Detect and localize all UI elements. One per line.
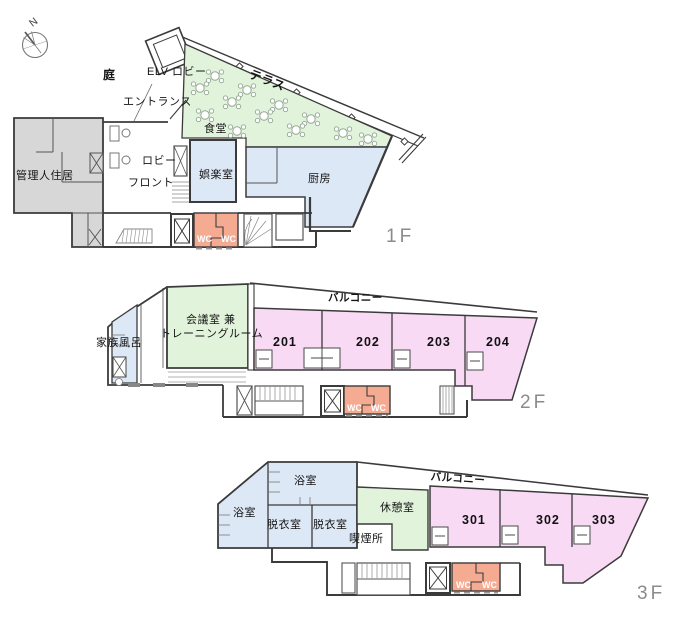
ramp-hatch-icon <box>116 229 152 243</box>
room-label-lobby: ロビー <box>142 155 177 168</box>
room-label-entrance: エントランス <box>123 96 192 109</box>
compass-icon <box>23 32 48 58</box>
room-label-201: 201 <box>273 335 297 349</box>
room-label-dressing-2: 脱衣室 <box>313 519 348 532</box>
stairs-icon-1f <box>244 214 272 247</box>
wc-label-3f-2: WC <box>482 580 497 590</box>
room-label-204: 204 <box>486 335 510 349</box>
floorplan-page: N 庭 ELV ロビー エントランス テラス 食堂 ロビー フロント 管理人住居… <box>0 0 680 623</box>
room-label-rest-room: 休憩室 <box>380 502 415 515</box>
floor2-plan <box>108 283 537 417</box>
room-label-elv-lobby: ELV ロビー <box>147 66 207 79</box>
elevator-icon-2f <box>321 386 344 416</box>
room-label-manager-residence: 管理人住居 <box>16 170 74 183</box>
floor1-plan <box>14 28 426 249</box>
elevator-icon-3f <box>426 563 450 593</box>
room-label-bath-upper: 浴室 <box>294 475 317 488</box>
stairs-icon-3f <box>357 563 410 595</box>
wc-label-3f-1: WC <box>456 580 471 590</box>
wc-label-2f-1: WC <box>347 403 362 413</box>
stairs2-icon-2f <box>440 386 454 414</box>
floor2-label: 2F <box>520 392 548 414</box>
meeting-room-label-2: トレーニングルーム <box>160 328 263 341</box>
room-label-dressing-1: 脱衣室 <box>267 519 302 532</box>
storage-room-1f <box>276 214 303 240</box>
shaft-icon-2f <box>237 386 252 415</box>
room-label-family-bath: 家族風呂 <box>96 337 142 350</box>
room-label-203: 203 <box>427 335 451 349</box>
room-label-recreation: 娯楽室 <box>199 169 234 182</box>
room-label-bath-left: 浴室 <box>233 507 256 520</box>
room-label-smoking: 喫煙所 <box>349 533 384 546</box>
room-label-garden: 庭 <box>103 69 116 83</box>
room-label-303: 303 <box>592 513 616 527</box>
meeting-room-label-1: 会議室 兼 <box>186 314 236 327</box>
balcony-label-2f: バルコニー <box>328 292 383 304</box>
room-label-202: 202 <box>356 335 380 349</box>
floor2-corridor <box>223 385 467 417</box>
room-label-302: 302 <box>536 513 560 527</box>
shaft-icon-3f <box>342 563 355 593</box>
stairs-icon-2f <box>255 386 303 415</box>
floor1-label: 1F <box>386 226 414 248</box>
wc-label-1f-2: WC <box>221 234 236 244</box>
balcony-rail-2f <box>250 283 537 312</box>
bath-block-3f <box>218 462 357 548</box>
elevator-icon-1f <box>171 214 193 247</box>
floor3-label: 3F <box>637 583 665 605</box>
room-label-301: 301 <box>462 513 486 527</box>
room-label-dining: 食堂 <box>204 123 227 136</box>
wc-label-1f-1: WC <box>197 234 212 244</box>
room-label-kitchen: 厨房 <box>308 173 331 186</box>
room-label-front: フロント <box>128 177 174 190</box>
wc-label-2f-2: WC <box>371 403 386 413</box>
